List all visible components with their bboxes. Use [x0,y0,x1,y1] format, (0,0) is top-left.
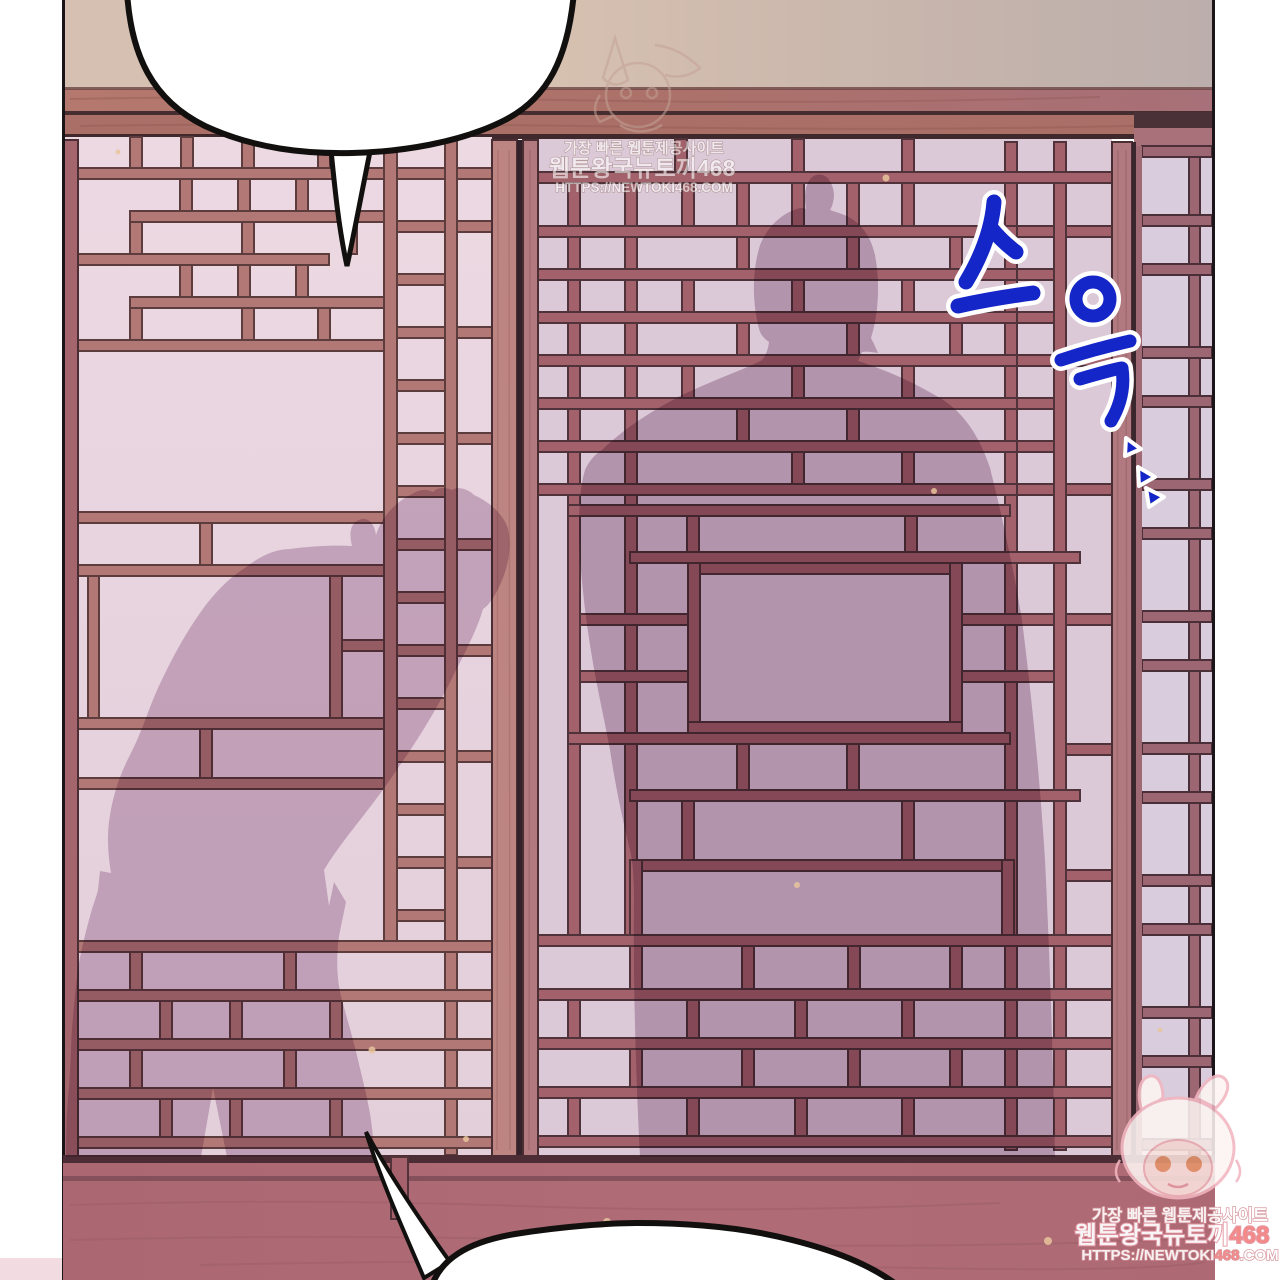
svg-text:HTTPS://NEWTOKI468.COM: HTTPS://NEWTOKI468.COM [1081,1247,1278,1264]
svg-text:웹툰왕국뉴토끼468: 웹툰왕국뉴토끼468 [549,155,736,181]
svg-text:HTTPS://NEWTOKI468.COM: HTTPS://NEWTOKI468.COM [555,180,733,195]
svg-text:웹툰왕국뉴토끼468: 웹툰왕국뉴토끼468 [1075,1222,1270,1249]
